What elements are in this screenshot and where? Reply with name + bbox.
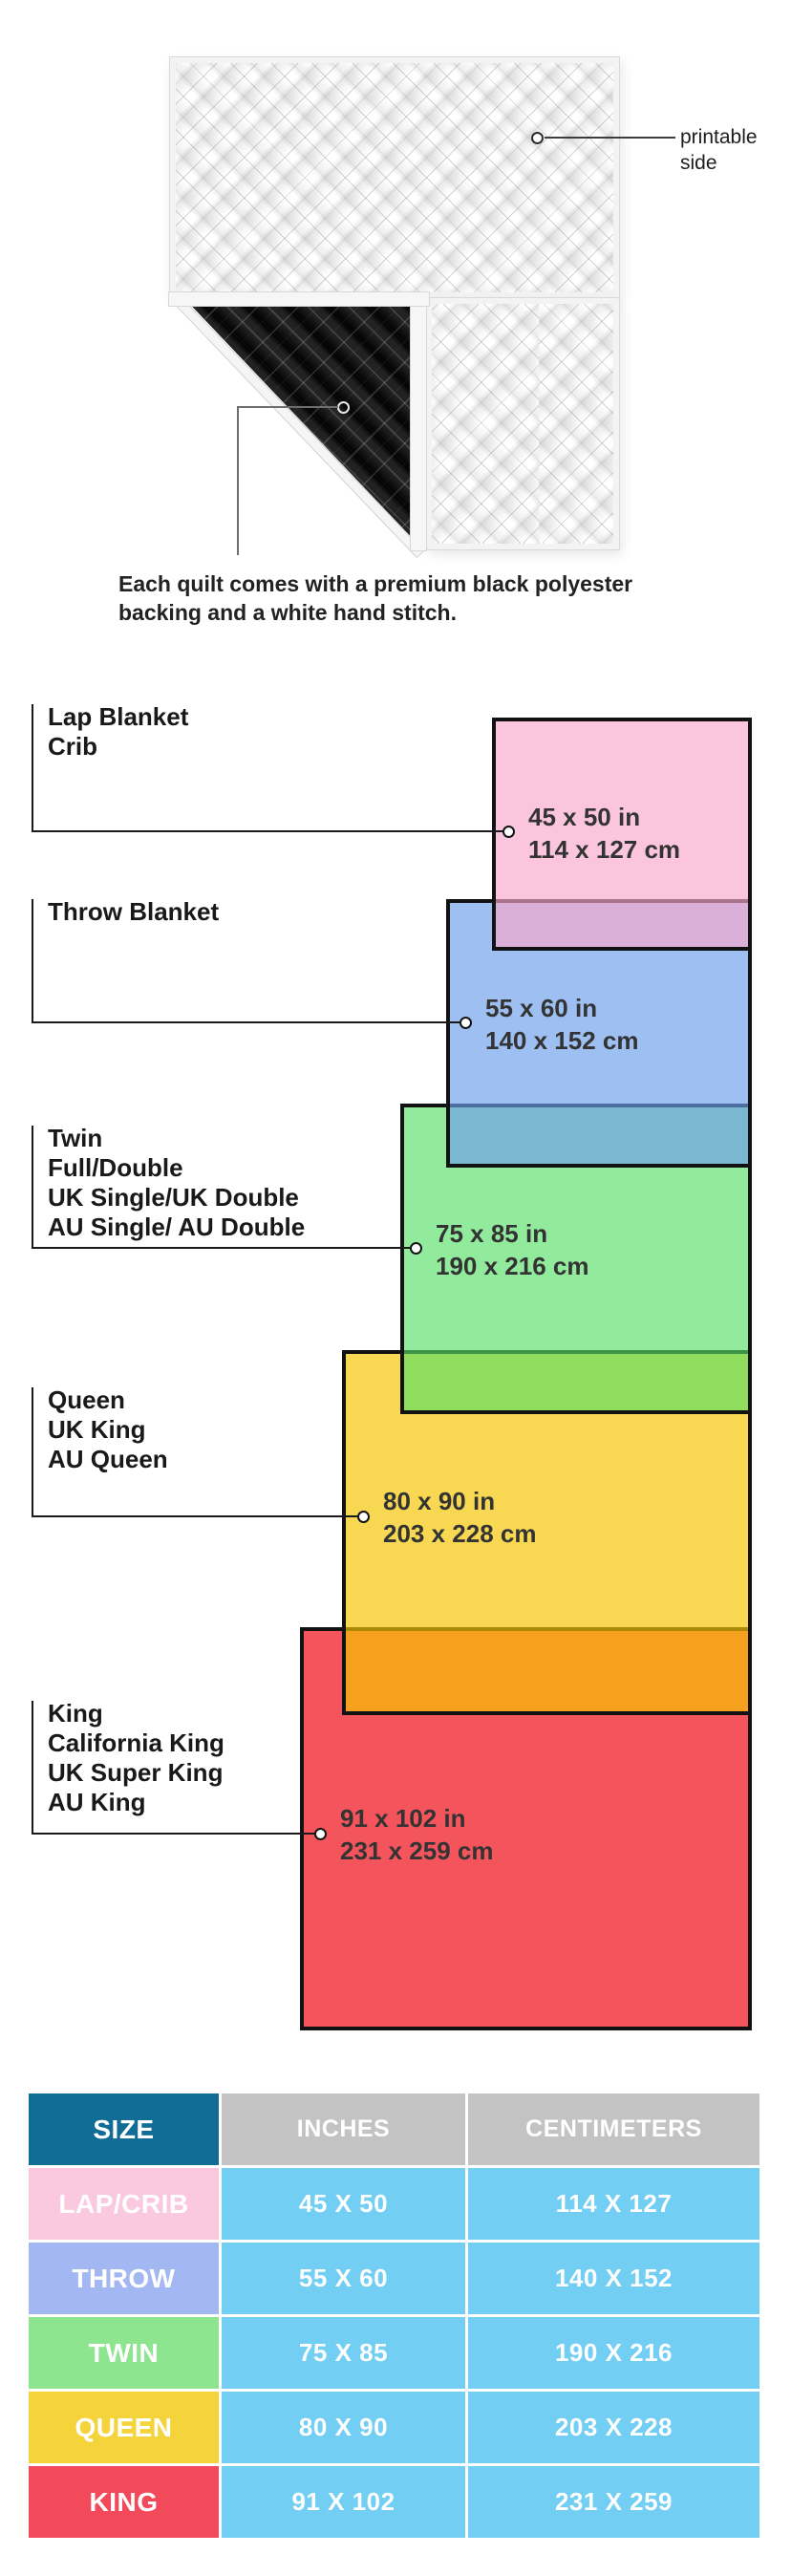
table-cell-inches: 75 X 85 (222, 2317, 465, 2389)
quilt-front-right (426, 298, 619, 549)
quilt-black-backing-fold (184, 298, 422, 548)
printable-side-label: printable side (680, 124, 758, 176)
size-name: AU King (48, 1788, 224, 1817)
size-names-throw: Throw Blanket (48, 897, 219, 927)
size-name: UK King (48, 1415, 168, 1445)
size-table: SIZE INCHES CENTIMETERS LAP/CRIB 45 X 50… (29, 2093, 759, 2538)
quilt-caption-line1: Each quilt comes with a premium black po… (118, 570, 632, 599)
connector-dot-icon (410, 1242, 422, 1255)
table-row-label-queen: QUEEN (29, 2392, 219, 2463)
size-name: AU Queen (48, 1445, 168, 1474)
quilt-binding-fold-line (169, 292, 429, 306)
size-name: California King (48, 1728, 224, 1758)
dimension-inches: 45 x 50 in (528, 801, 680, 833)
size-names-queen: Queen UK King AU Queen (48, 1385, 168, 1474)
table-cell-cm: 190 X 216 (468, 2317, 759, 2389)
connector-dot-icon (460, 1017, 472, 1029)
table-cell-cm: 140 X 152 (468, 2243, 759, 2314)
dimension-inches: 55 x 60 in (485, 992, 638, 1024)
table-header-centimeters: CENTIMETERS (468, 2093, 759, 2165)
dimension-label-king: 91 x 102 in 231 x 259 cm (340, 1802, 493, 1867)
dimension-label-queen: 80 x 90 in 203 x 228 cm (383, 1485, 536, 1550)
connector-line (32, 1247, 411, 1249)
table-header-inches: INCHES (222, 2093, 465, 2165)
size-name: Full/Double (48, 1153, 305, 1183)
dimension-cm: 190 x 216 cm (436, 1250, 588, 1282)
size-name: UK Super King (48, 1758, 224, 1788)
connector-line (32, 1021, 460, 1023)
table-cell-cm: 203 X 228 (468, 2392, 759, 2463)
printable-side-marker-icon (531, 132, 544, 144)
quilt-caption-line2: backing and a white hand stitch. (118, 599, 632, 628)
table-row-label-lap: LAP/CRIB (29, 2168, 219, 2240)
printable-side-label-line1: printable (680, 124, 758, 150)
table-cell-cm: 114 X 127 (468, 2168, 759, 2240)
quilt-size-infographic: printable side Each quilt comes with a p… (0, 0, 791, 2576)
table-header-size: SIZE (29, 2093, 219, 2165)
quilt-front-top (170, 57, 619, 298)
size-name: Twin (48, 1124, 305, 1153)
size-names-king: King California King UK Super King AU Ki… (48, 1699, 224, 1817)
connector-line (32, 1515, 358, 1517)
connector-line (32, 704, 33, 832)
dimension-label-lap: 45 x 50 in 114 x 127 cm (528, 801, 680, 866)
table-cell-inches: 45 X 50 (222, 2168, 465, 2240)
table-cell-inches: 55 X 60 (222, 2243, 465, 2314)
backing-connector-line-vertical (237, 406, 239, 555)
quilt-binding-vertical (411, 292, 426, 550)
printable-side-connector-line (545, 137, 675, 139)
size-name: Lap Blanket (48, 702, 188, 732)
table-row-label-throw: THROW (29, 2243, 219, 2314)
backing-connector-line-horizontal (238, 406, 338, 408)
table-row-label-king: KING (29, 2466, 219, 2538)
backing-marker-icon (337, 401, 350, 414)
table-cell-cm: 231 X 259 (468, 2466, 759, 2538)
size-names-lap: Lap Blanket Crib (48, 702, 188, 762)
size-name: Throw Blanket (48, 897, 219, 927)
dimension-label-twin: 75 x 85 in 190 x 216 cm (436, 1217, 588, 1282)
printable-side-label-line2: side (680, 150, 758, 176)
connector-line (32, 1126, 33, 1249)
connector-line (32, 1833, 315, 1835)
connector-line (32, 1387, 33, 1517)
table-cell-inches: 91 X 102 (222, 2466, 465, 2538)
connector-dot-icon (502, 826, 515, 838)
table-cell-inches: 80 X 90 (222, 2392, 465, 2463)
dimension-inches: 75 x 85 in (436, 1217, 588, 1250)
dimension-cm: 231 x 259 cm (340, 1835, 493, 1867)
dimension-cm: 203 x 228 cm (383, 1517, 536, 1550)
size-names-twin: Twin Full/Double UK Single/UK Double AU … (48, 1124, 305, 1242)
connector-dot-icon (314, 1828, 327, 1840)
dimension-label-throw: 55 x 60 in 140 x 152 cm (485, 992, 638, 1057)
connector-line (32, 899, 33, 1023)
dimension-cm: 140 x 152 cm (485, 1024, 638, 1057)
size-name: King (48, 1699, 224, 1728)
quilt-caption: Each quilt comes with a premium black po… (118, 570, 632, 627)
connector-dot-icon (357, 1511, 370, 1523)
size-name: Crib (48, 732, 188, 762)
dimension-inches: 80 x 90 in (383, 1485, 536, 1517)
connector-line (32, 830, 503, 832)
dimension-cm: 114 x 127 cm (528, 833, 680, 866)
size-name: AU Single/ AU Double (48, 1213, 305, 1242)
table-row-label-twin: TWIN (29, 2317, 219, 2389)
size-name: Queen (48, 1385, 168, 1415)
dimension-inches: 91 x 102 in (340, 1802, 493, 1835)
connector-line (32, 1701, 33, 1835)
size-name: UK Single/UK Double (48, 1183, 305, 1213)
